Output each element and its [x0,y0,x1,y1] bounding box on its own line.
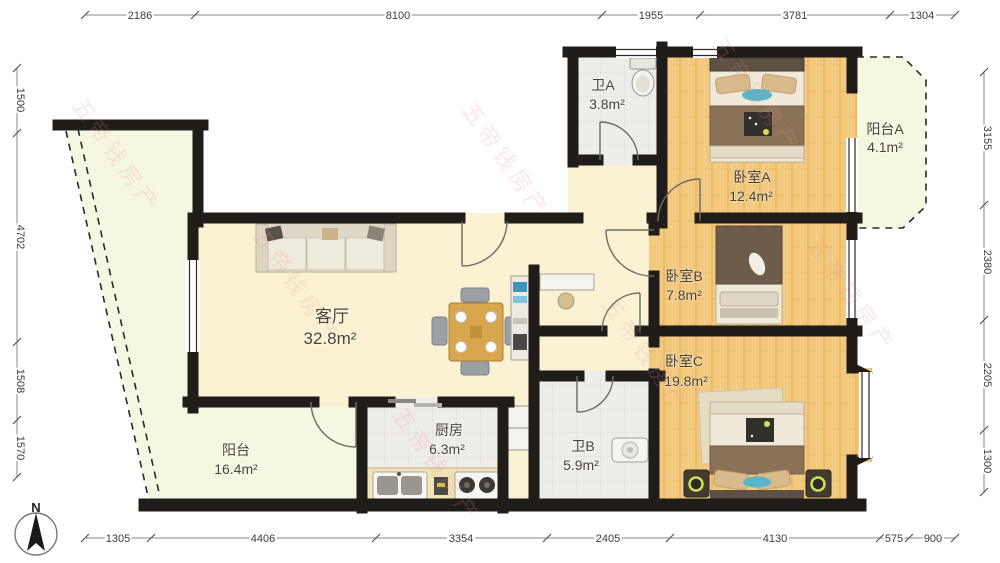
label-bedroom-c-area: 19.8m² [664,373,708,389]
window [616,46,656,58]
label-living-name: 客厅 [315,307,349,326]
floor-plan-svg: 五帝钱房产 五帝钱房产 五帝钱房产 五帝钱房产 五帝钱房产 五帝钱房产 五帝钱房… [0,0,1000,563]
dim-label: 1305 [106,533,130,545]
dim-label: 4702 [14,225,26,249]
dim-label: 4130 [763,533,787,545]
label-bath-b-area: 5.9m² [563,457,599,473]
washing-machine [612,438,648,462]
dim-label: 1570 [14,436,26,460]
north-label: N [31,500,40,515]
dim-label: 3354 [449,533,473,545]
window [187,260,200,352]
label-bedroom-b-area: 7.8m² [666,287,702,303]
window [846,138,858,212]
label-balcony-a-name: 阳台A [866,121,904,137]
tv-stand [511,276,529,360]
sliding-door [414,403,442,407]
label-bath-a-name: 卫A [591,77,615,93]
label-bedroom-b-name: 卧室B [665,268,702,284]
dim-label: 4406 [251,533,275,545]
label-bedroom-c-name: 卧室C [665,353,703,369]
dim-label: 2380 [981,250,993,274]
label-bath-b-name: 卫B [571,438,594,454]
dim-label: 3781 [783,10,807,22]
label-kitchen-name: 厨房 [435,422,463,438]
label-kitchen-area: 6.3m² [429,441,465,457]
dim-label: 8100 [386,10,410,22]
label-balcony-a-area: 4.1m² [867,139,903,155]
sliding-door [388,399,416,403]
dim-label: 1304 [910,10,934,22]
dimension-labels-top: 2186 8100 1955 3781 1304 [128,10,934,22]
dim-label: 900 [924,533,942,545]
dim-label: 1955 [639,10,663,22]
floor-plan-page: 五帝钱房产 五帝钱房产 五帝钱房产 五帝钱房产 五帝钱房产 五帝钱房产 五帝钱房… [0,0,1000,563]
label-living-area: 32.8m² [304,329,357,348]
dim-label: 2205 [981,363,993,387]
dim-label: 2405 [596,533,620,545]
label-balcony-main-area: 16.4m² [214,461,258,477]
dim-label: 1508 [14,369,26,393]
label-bedroom-a-area: 12.4m² [729,188,773,204]
label-bath-a-area: 3.8m² [589,96,625,112]
dim-label: 575 [885,533,903,545]
dim-label: 1300 [981,449,993,473]
dim-label: 2186 [128,10,152,22]
dim-label: 1500 [14,88,26,112]
dim-label: 3155 [981,126,993,150]
bed-b [716,226,782,324]
dimension-labels-left: 1500 4702 1508 1570 [14,88,26,460]
balcony-main-floor [190,402,367,505]
north-compass-icon: N [15,500,57,555]
dimension-labels-bottom: 1305 4406 3354 2405 4130 575 900 [106,533,942,545]
toilet [630,58,656,96]
label-balcony-main-name: 阳台 [222,442,250,458]
bay-window [859,372,872,458]
dimension-labels-right: 3155 2380 2205 1300 [981,126,993,473]
label-bedroom-a-name: 卧室A [733,169,771,185]
watermark-text: 五帝钱房产 [457,98,555,223]
